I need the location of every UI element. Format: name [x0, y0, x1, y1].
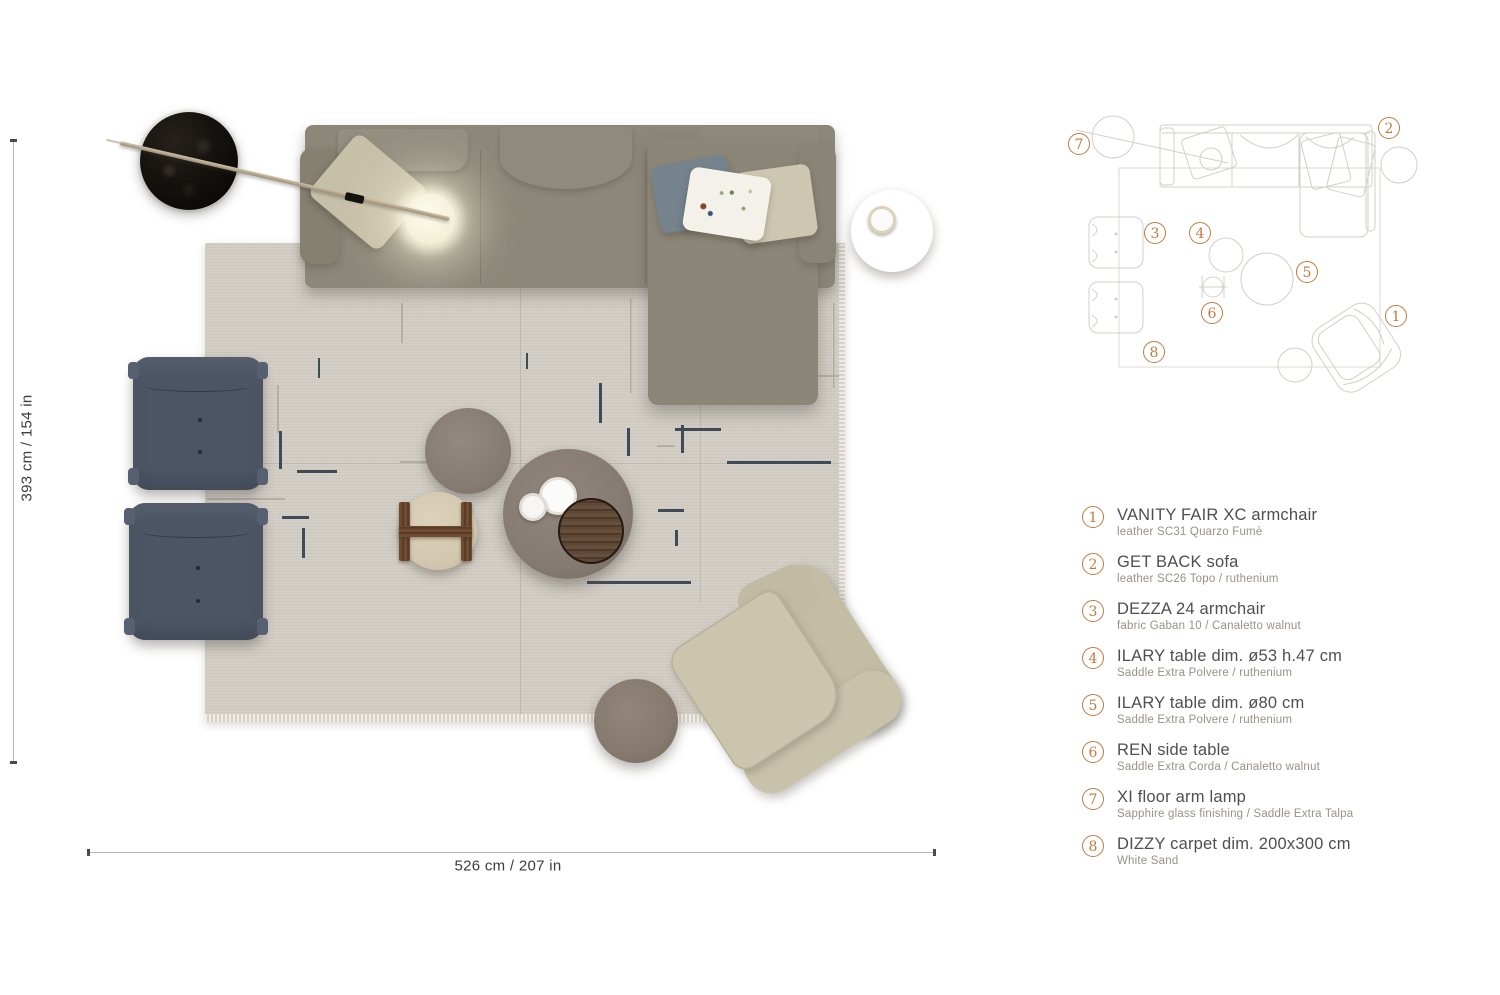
sofa-seat-divider — [645, 150, 646, 284]
legend: 1 VANITY FAIR XC armchair leather SC31 Q… — [1082, 505, 1442, 881]
armchair-corner-tabs — [133, 357, 263, 490]
legend-item-ilary-53: 4 ILARY table dim. ø53 h.47 cm Saddle Ex… — [1082, 646, 1442, 680]
legend-item-title: ILARY table dim. ø53 h.47 cm — [1117, 646, 1342, 666]
schematic-plan — [1060, 105, 1430, 405]
legend-item-spec: leather SC26 Topo / ruthenium — [1117, 572, 1279, 586]
vertical-dimension-line — [13, 140, 14, 763]
schematic-badge-6: 6 — [1201, 302, 1223, 324]
legend-item-title: DIZZY carpet dim. 200x300 cm — [1117, 834, 1351, 854]
armchair-dezza-1 — [133, 357, 263, 490]
legend-number-badge: 8 — [1082, 835, 1104, 857]
legend-number-badge: 1 — [1082, 506, 1104, 528]
horizontal-dimension-line — [88, 852, 935, 853]
cup — [868, 206, 896, 234]
sofa-seat-divider — [480, 150, 481, 284]
legend-item-spec: Sapphire glass finishing / Saddle Extra … — [1117, 807, 1353, 821]
armchair-button — [196, 599, 200, 603]
table-round-beige — [851, 190, 933, 272]
legend-text: DIZZY carpet dim. 200x300 cm White Sand — [1117, 834, 1351, 868]
legend-text: XI floor arm lamp Sapphire glass finishi… — [1117, 787, 1353, 821]
legend-item-spec: White Sand — [1117, 854, 1351, 868]
legend-item-dizzy: 8 DIZZY carpet dim. 200x300 cm White San… — [1082, 834, 1442, 868]
legend-number-badge: 6 — [1082, 741, 1104, 763]
horizontal-dimension-label: 526 cm / 207 in — [454, 858, 561, 875]
legend-number-badge: 5 — [1082, 694, 1104, 716]
legend-item-spec: fabric Gaban 10 / Canaletto walnut — [1117, 619, 1301, 633]
schematic-badge-1: 1 — [1385, 305, 1407, 327]
schematic-badge-3: 3 — [1144, 222, 1166, 244]
legend-number-badge: 2 — [1082, 553, 1104, 575]
cup — [519, 493, 547, 521]
legend-number-badge: 7 — [1082, 788, 1104, 810]
table-ilary-80 — [503, 449, 633, 579]
sofa-headrest-middle — [500, 127, 632, 189]
legend-item-spec: leather SC31 Quarzo Fumè — [1117, 525, 1317, 539]
legend-item-spec: Saddle Extra Polvere / ruthenium — [1117, 713, 1304, 727]
legend-text: ILARY table dim. ø53 h.47 cm Saddle Extr… — [1117, 646, 1342, 680]
walnut-tray — [558, 498, 624, 564]
legend-item-spec: Saddle Extra Corda / Canaletto walnut — [1117, 760, 1320, 774]
legend-text: VANITY FAIR XC armchair leather SC31 Qua… — [1117, 505, 1317, 539]
armchair-button — [196, 566, 200, 570]
legend-text: REN side table Saddle Extra Corda / Cana… — [1117, 740, 1320, 774]
schematic-badge-7: 7 — [1068, 133, 1090, 155]
schematic-badge-5: 5 — [1296, 261, 1318, 283]
armchair-corner-tabs — [129, 503, 263, 640]
vertical-dimension-label: 393 cm / 154 in — [19, 394, 36, 501]
legend-item-get-back: 2 GET BACK sofa leather SC26 Topo / ruth… — [1082, 552, 1442, 586]
legend-item-vanity-fair: 1 VANITY FAIR XC armchair leather SC31 Q… — [1082, 505, 1442, 539]
legend-item-title: XI floor arm lamp — [1117, 787, 1353, 807]
side-table-round — [594, 679, 678, 763]
legend-number-badge: 4 — [1082, 647, 1104, 669]
table-ilary-53 — [425, 408, 511, 494]
legend-number-badge: 3 — [1082, 600, 1104, 622]
legend-item-title: REN side table — [1117, 740, 1320, 760]
schematic-badge-2: 2 — [1378, 117, 1400, 139]
throw-pillow-floral — [681, 166, 772, 242]
legend-item-dezza: 3 DEZZA 24 armchair fabric Gaban 10 / Ca… — [1082, 599, 1442, 633]
schematic-badge-8: 8 — [1143, 341, 1165, 363]
legend-item-ilary-80: 5 ILARY table dim. ø80 cm Saddle Extra P… — [1082, 693, 1442, 727]
legend-item-title: GET BACK sofa — [1117, 552, 1279, 572]
legend-text: ILARY table dim. ø80 cm Saddle Extra Pol… — [1117, 693, 1304, 727]
legend-item-ren: 6 REN side table Saddle Extra Corda / Ca… — [1082, 740, 1442, 774]
legend-item-title: DEZZA 24 armchair — [1117, 599, 1301, 619]
legend-item-title: ILARY table dim. ø80 cm — [1117, 693, 1304, 713]
legend-text: GET BACK sofa leather SC26 Topo / ruthen… — [1117, 552, 1279, 586]
legend-text: DEZZA 24 armchair fabric Gaban 10 / Cana… — [1117, 599, 1301, 633]
armchair-seam — [143, 379, 253, 392]
armchair-dezza-2 — [129, 503, 263, 640]
legend-item-xi-lamp: 7 XI floor arm lamp Sapphire glass finis… — [1082, 787, 1442, 821]
armchair-seam — [139, 525, 253, 538]
ren-walnut-crossbar — [399, 526, 472, 537]
legend-item-spec: Saddle Extra Polvere / ruthenium — [1117, 666, 1342, 680]
floor-plan-canvas: 393 cm / 154 in 526 cm / 207 in — [0, 0, 1500, 995]
schematic-badge-4: 4 — [1189, 222, 1211, 244]
legend-item-title: VANITY FAIR XC armchair — [1117, 505, 1317, 525]
